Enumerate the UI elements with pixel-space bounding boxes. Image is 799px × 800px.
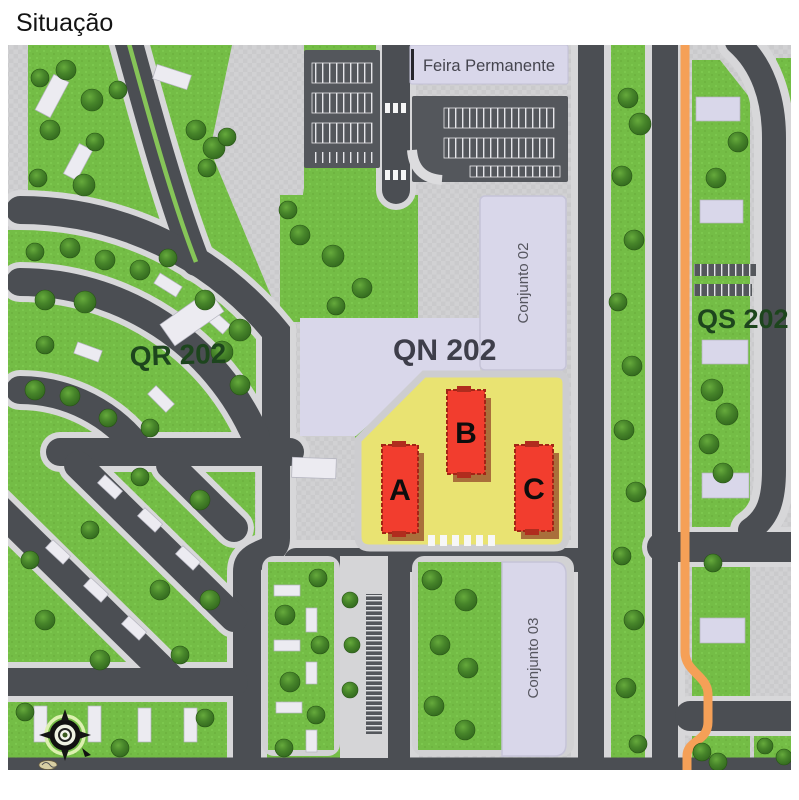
- median-green-strip: [604, 45, 652, 758]
- tower-b-label: B: [455, 417, 477, 450]
- conjunto-02-label: Conjunto 02: [515, 243, 532, 324]
- scale-mark: [39, 761, 57, 770]
- tower-a-label: A: [389, 474, 411, 507]
- conjunto-03-label: Conjunto 03: [525, 618, 542, 699]
- feira-entrance-mark: [411, 49, 414, 80]
- plaza-kiosk: [292, 457, 337, 479]
- parking-lot-west: [304, 50, 380, 168]
- qs-202-label: QS 202: [697, 304, 789, 334]
- tower-c-label: C: [523, 473, 545, 506]
- page-title: Situação: [16, 9, 113, 37]
- feira-permanente-label: Feira Permanente: [423, 57, 555, 75]
- plaza-green-block: [280, 195, 418, 322]
- qr-202-label: QR 202: [129, 338, 227, 372]
- qn-202-label: QN 202: [393, 334, 496, 367]
- site-map: Situação: [0, 0, 799, 800]
- parking-strip-south: [340, 556, 388, 758]
- parking-lot-east: [412, 96, 568, 182]
- situacao-map-page: Situação: [0, 0, 799, 800]
